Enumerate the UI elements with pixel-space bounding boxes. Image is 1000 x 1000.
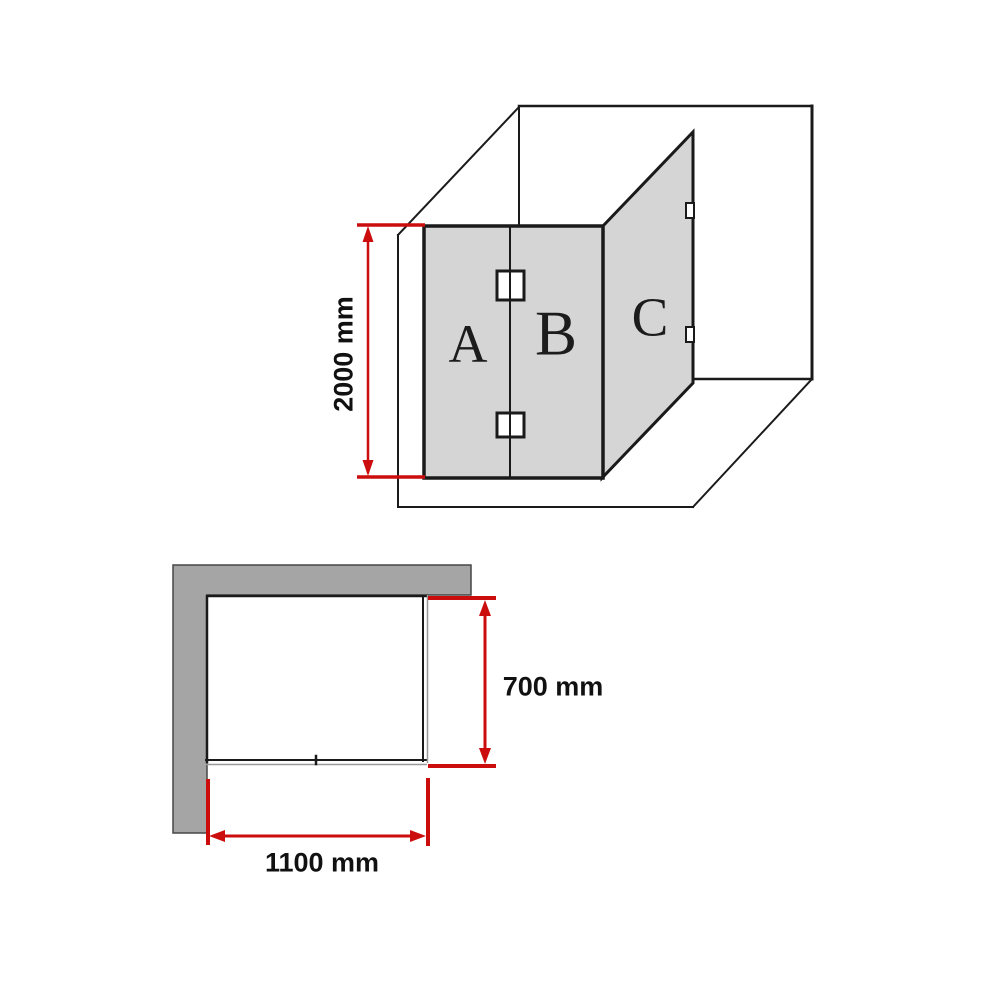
wall-bracket-top-icon xyxy=(686,203,694,218)
width-dimension-1100 xyxy=(208,778,428,846)
panel-a-label: A xyxy=(449,317,488,371)
dim-1100-arrow-right-icon xyxy=(410,830,426,842)
diagram-linework xyxy=(0,0,1000,1000)
wall-bracket-bottom-icon xyxy=(686,327,694,342)
dim-2000-arrow-up-icon xyxy=(363,226,374,242)
dim-1100-arrow-left-icon xyxy=(209,830,225,842)
height-dimension-label: 2000 mm xyxy=(331,296,358,412)
floor-right-diagonal xyxy=(693,379,812,507)
width-dimension-label: 1100 mm xyxy=(265,850,379,877)
panel-c-label: C xyxy=(632,290,669,345)
dim-700-arrow-down-icon xyxy=(479,748,491,764)
panel-b-label: B xyxy=(535,303,577,366)
plan-enclosure-wall-edges xyxy=(207,596,427,762)
depth-dimension-700 xyxy=(428,598,496,766)
left-wall-top-diagonal xyxy=(398,107,519,235)
shower-screen-dimension-diagram: A B C 2000 mm 700 mm 1100 mm xyxy=(0,0,1000,1000)
dim-700-arrow-up-icon xyxy=(479,600,491,616)
height-dimension-2000 xyxy=(357,225,425,477)
depth-dimension-label: 700 mm xyxy=(503,674,604,701)
dim-2000-arrow-down-icon xyxy=(363,460,374,476)
